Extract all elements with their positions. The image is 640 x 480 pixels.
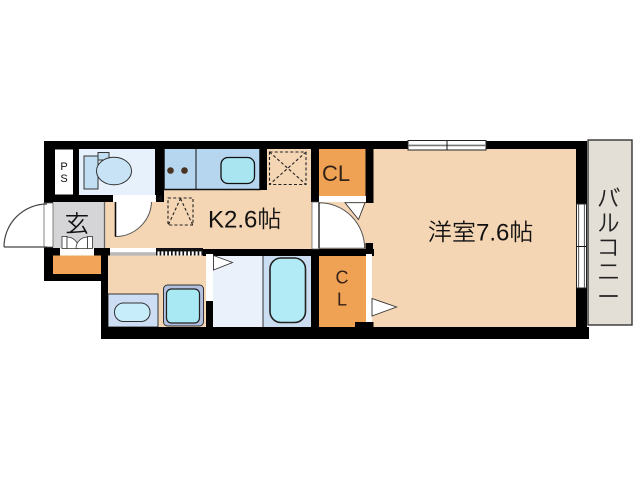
svg-text:C: C: [336, 268, 349, 288]
svg-text:P: P: [60, 161, 67, 173]
svg-text:7.6: 7.6: [476, 220, 509, 247]
svg-text:S: S: [60, 173, 67, 185]
svg-text:K2.6: K2.6: [208, 207, 257, 234]
svg-text:CL: CL: [322, 161, 350, 186]
svg-text:L: L: [337, 290, 347, 310]
